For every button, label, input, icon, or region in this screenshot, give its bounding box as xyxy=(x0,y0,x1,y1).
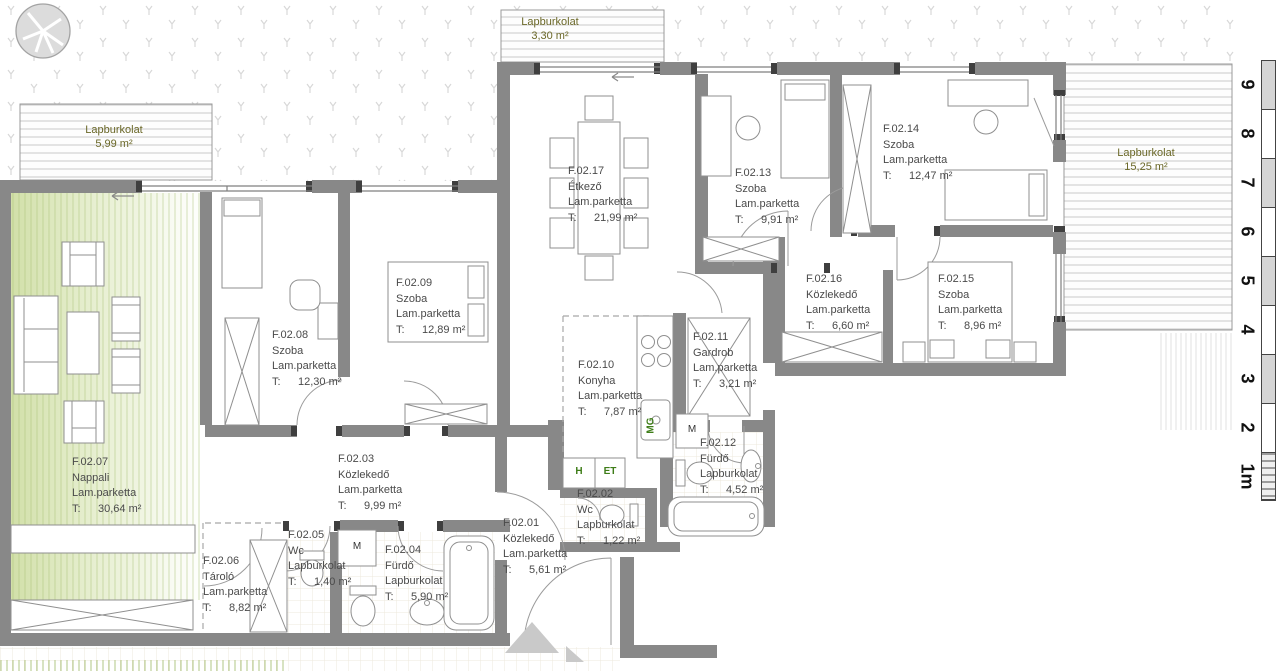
floor-plan-canvas: F.02.07 Nappali Lam.parketta T:30,64 m² … xyxy=(0,0,1280,671)
nightstand xyxy=(903,342,925,362)
room-label-f0208: F.02.08Szoba Lam.parketta T:12,30 m² xyxy=(272,328,341,390)
bed xyxy=(945,170,1047,220)
floor-plan-drawing xyxy=(0,0,1280,671)
chair xyxy=(62,242,104,286)
wardrobe-icon xyxy=(11,600,193,630)
room-label-f0217: F.02.17Étkező Lam.parketta T:21,99 m² xyxy=(568,164,637,226)
coffee-table xyxy=(67,312,99,374)
armchair xyxy=(112,297,140,341)
sofa xyxy=(14,296,58,394)
room-label-f0207: F.02.07 Nappali Lam.parketta T:30,64 m² xyxy=(72,455,141,517)
room-label-f0202: F.02.02Wc Lapburkolat T:1,22 m² xyxy=(577,487,640,549)
scale-bar xyxy=(1261,60,1276,501)
wardrobe-icon xyxy=(782,332,882,362)
washing-machine-marker: M xyxy=(339,541,375,552)
bed xyxy=(781,80,829,178)
dishwasher-marker: MG xyxy=(646,411,657,441)
scale-label-6: 6 xyxy=(1235,207,1259,256)
scale-label-5: 5 xyxy=(1235,256,1259,305)
wardrobe-icon xyxy=(703,237,779,261)
desk-chair xyxy=(974,110,998,134)
outdoor-area-label: Lapburkolat5,99 m² xyxy=(58,123,170,151)
cabinet-row xyxy=(11,525,195,553)
toilet xyxy=(350,586,376,626)
scale-label-3: 3 xyxy=(1235,354,1259,403)
room-label-f0213: F.02.13Szoba Lam.parketta T:9,91 m² xyxy=(735,166,799,228)
scale-label-4: 4 xyxy=(1235,305,1259,354)
scale-label-1m: 1m xyxy=(1235,452,1259,501)
tree-icon xyxy=(16,4,70,58)
room-label-f0203: F.02.03Közlekedő Lam.parketta T:9,99 m² xyxy=(338,452,402,514)
scale-label-2: 2 xyxy=(1235,403,1259,452)
scale-label-7: 7 xyxy=(1235,158,1259,207)
room-label-f0212: F.02.12Fürdő Lapburkolat T:4,52 m² xyxy=(700,436,763,498)
armchair xyxy=(112,349,140,393)
outdoor-area-label: Lapburkolat3,30 m² xyxy=(504,15,596,43)
chair xyxy=(64,401,104,443)
washing-machine-marker: M xyxy=(676,424,708,435)
room-label-f0215: F.02.15Szoba Lam.parketta T:8,96 m² xyxy=(938,272,1002,334)
room-label-f0216: F.02.16Közlekedő Lam.parketta T:6,60 m² xyxy=(806,272,870,334)
bed xyxy=(222,198,262,288)
et-marker: ET xyxy=(596,466,624,477)
wardrobe-icon xyxy=(843,85,871,233)
room-label-f0204: F.02.04Fürdő Lapburkolat T:5,90 m² xyxy=(385,543,448,605)
fridge-marker: H xyxy=(565,466,593,477)
nightstand xyxy=(1014,342,1036,362)
room-label-f0201: F.02.01Közlekedő Lam.parketta T:5,61 m² xyxy=(503,516,567,578)
outdoor-area-label: Lapburkolat15,25 m² xyxy=(1096,146,1196,174)
desk-chair xyxy=(736,116,760,140)
room-label-f0210: F.02.10Konyha Lam.parketta T:7,87 m² xyxy=(578,358,642,420)
room-label-f0214: F.02.14Szoba Lam.parketta T:12,47 m² xyxy=(883,122,952,184)
room-label-f0211: F.02.11Gardrob Lam.parketta T:3,21 m² xyxy=(693,330,757,392)
scale-label-8: 8 xyxy=(1235,109,1259,158)
green-strip-bottom xyxy=(0,660,285,671)
desk xyxy=(948,80,1028,106)
desk-chair xyxy=(290,280,320,310)
terrace-right xyxy=(1064,64,1232,330)
wardrobe-icon xyxy=(225,318,259,425)
wardrobe-icon xyxy=(405,404,487,424)
bathtub xyxy=(444,536,494,630)
scale-label-9: 9 xyxy=(1235,60,1259,109)
room-label-f0205: F.02.05Wc Lapburkolat T:1,40 m² xyxy=(288,528,351,590)
panel-below-terrace xyxy=(1160,333,1232,430)
desk xyxy=(701,96,731,176)
room-label-f0206: F.02.06Tároló Lam.parketta T:8,82 m² xyxy=(203,554,267,616)
room-label-f0209: F.02.09Szoba Lam.parketta T:12,89 m² xyxy=(396,276,465,338)
bathtub xyxy=(668,497,764,536)
